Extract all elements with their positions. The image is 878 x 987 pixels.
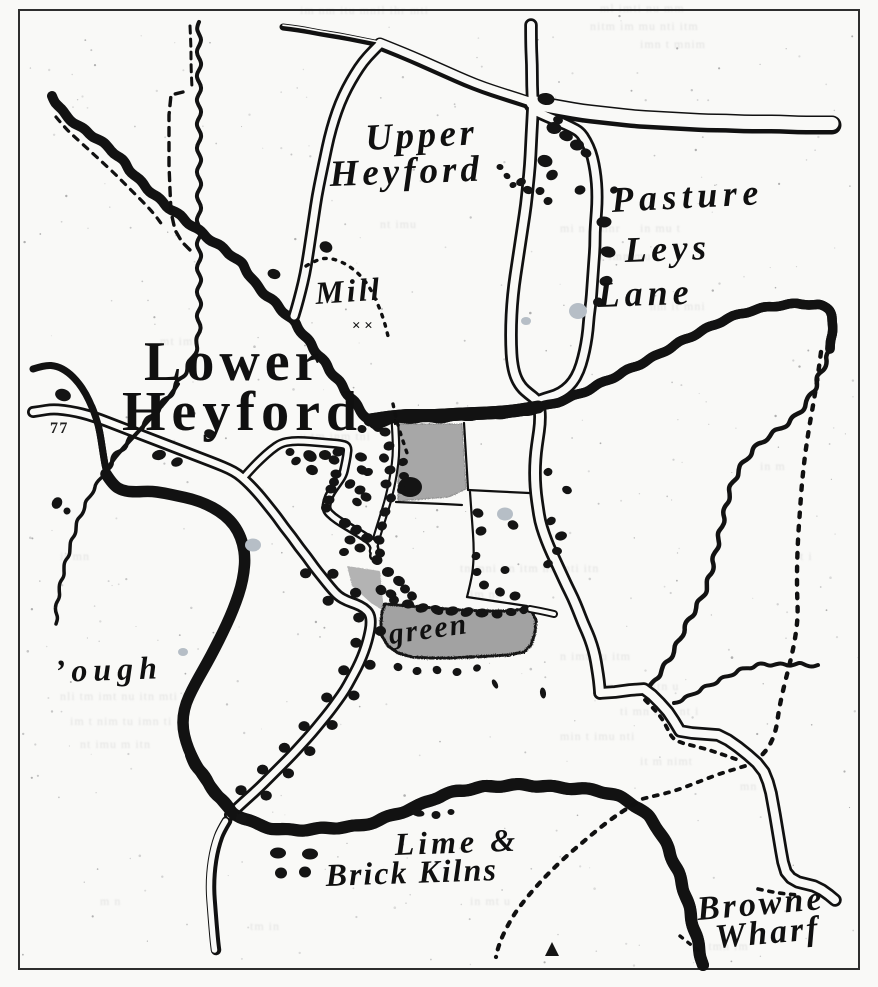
svg-text:Leys: Leys	[623, 227, 711, 270]
svg-text:nli tm imt nu itn mti im: nli tm imt nu itn mti im	[60, 689, 197, 703]
svg-text:Brick Kilns: Brick Kilns	[324, 851, 498, 893]
svg-text:min t imu nti: min t imu nti	[560, 729, 635, 743]
svg-text:Lane: Lane	[596, 272, 694, 315]
svg-text:nt imu m itn: nt imu m itn	[80, 737, 151, 751]
svg-text:Heyford: Heyford	[122, 381, 363, 443]
svg-text:’ough: ’ough	[54, 649, 163, 689]
svg-text:Mill: Mill	[313, 270, 383, 311]
svg-text:in m: in m	[760, 459, 786, 473]
svg-text:Heyford: Heyford	[328, 149, 484, 195]
svg-text:nitm im mu nti itm: nitm im mu nti itm	[590, 19, 699, 33]
svg-text:im t nim tu imn ti: im t nim tu imn ti	[70, 714, 172, 728]
svg-text:it m nimt: it m nimt	[640, 754, 693, 768]
svg-text:in mt u: in mt u	[470, 894, 511, 908]
svg-text:Pasture: Pasture	[609, 172, 764, 220]
svg-text:m n: m n	[100, 894, 121, 908]
svg-text:ml imti nu mm: ml imti nu mm	[600, 1, 685, 15]
svg-text:tm in: tm in	[250, 919, 280, 933]
svg-text:t i: t i	[800, 549, 813, 563]
svg-text:× ×: × ×	[352, 318, 373, 334]
svg-text:imn t mnim: imn t mnim	[640, 37, 706, 51]
svg-text:nt imu: nt imu	[380, 217, 417, 231]
svg-text:7 7: 7 7	[50, 420, 67, 437]
